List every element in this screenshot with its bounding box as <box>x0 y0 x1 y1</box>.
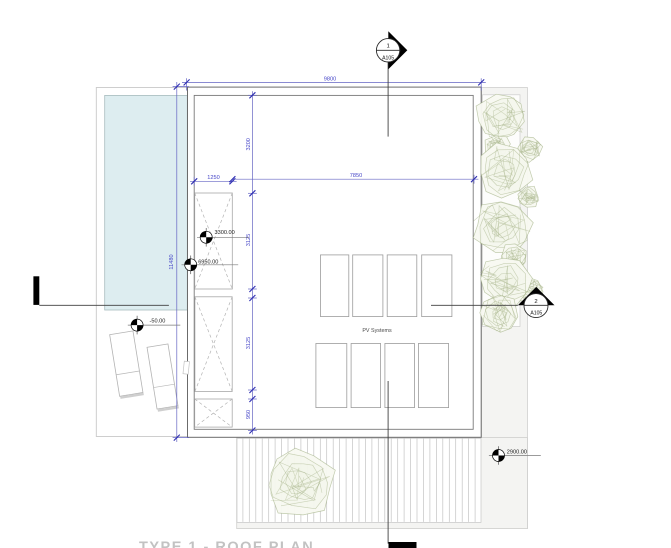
svg-text:1: 1 <box>386 44 389 50</box>
svg-text:A105: A105 <box>382 56 394 62</box>
svg-text:2: 2 <box>534 299 537 305</box>
svg-text:3300.00: 3300.00 <box>215 230 235 236</box>
svg-text:-50.00: -50.00 <box>150 319 166 325</box>
svg-text:9800: 9800 <box>324 76 336 82</box>
svg-text:A105: A105 <box>530 311 542 317</box>
svg-text:1250: 1250 <box>207 175 219 181</box>
svg-text:3125: 3125 <box>246 234 252 246</box>
svg-text:6950.00: 6950.00 <box>198 259 218 265</box>
svg-text:TYPE 1 - ROOF PLAN: TYPE 1 - ROOF PLAN <box>139 540 314 548</box>
svg-text:2900.00: 2900.00 <box>507 449 527 455</box>
svg-text:PV Systems: PV Systems <box>362 328 392 334</box>
svg-text:3200: 3200 <box>246 138 252 150</box>
svg-text:7850: 7850 <box>350 173 362 179</box>
svg-text:3125: 3125 <box>246 337 252 349</box>
svg-text:11480: 11480 <box>169 254 175 269</box>
svg-text:950: 950 <box>246 410 252 419</box>
